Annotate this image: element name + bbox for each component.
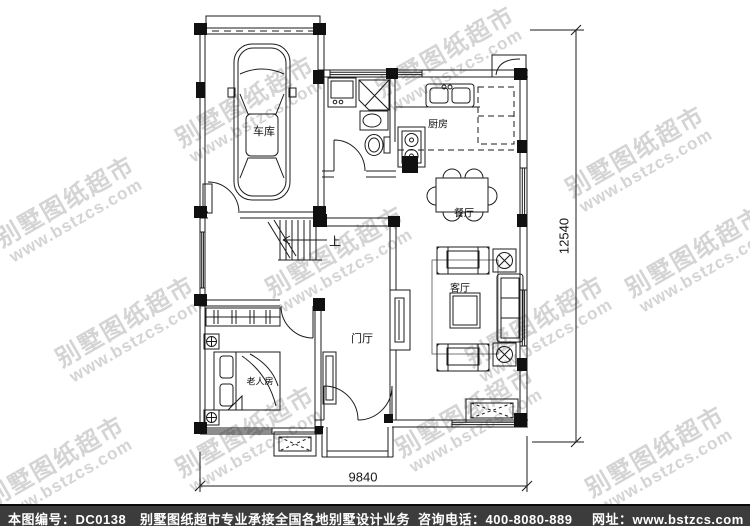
room-label-garage: 车库 [253,123,275,139]
room-label-living: 客厅 [450,280,470,295]
blueprint-page: 别墅图纸超市www.bstzcs.com 别墅图纸超市www.bstzcs.co… [0,0,750,526]
room-label-elder-room: 老人房 [246,375,273,388]
footer-website: 网址：www.bstzcs.com [592,509,744,526]
footer-drawing-number: 本图编号：DC0138 [8,509,126,526]
footer-service-text: 别墅图纸超市专业承接全国各地别墅设计业务 [140,509,410,526]
dimension-overall-width: 9840 [349,470,378,485]
stairs-up-label: 上 [329,233,341,250]
footer-bar: 本图编号：DC0138 别墅图纸超市专业承接全国各地别墅设计业务 咨询电话：40… [0,504,750,526]
dimension-overall-depth: 12540 [557,218,572,254]
room-label-hall: 门厅 [351,330,373,346]
room-label-dining: 餐厅 [454,205,474,220]
room-label-kitchen: 厨房 [428,116,448,131]
floor-plan-drawing [0,0,750,500]
footer-phone: 咨询电话：400-8080-889 [418,509,572,526]
